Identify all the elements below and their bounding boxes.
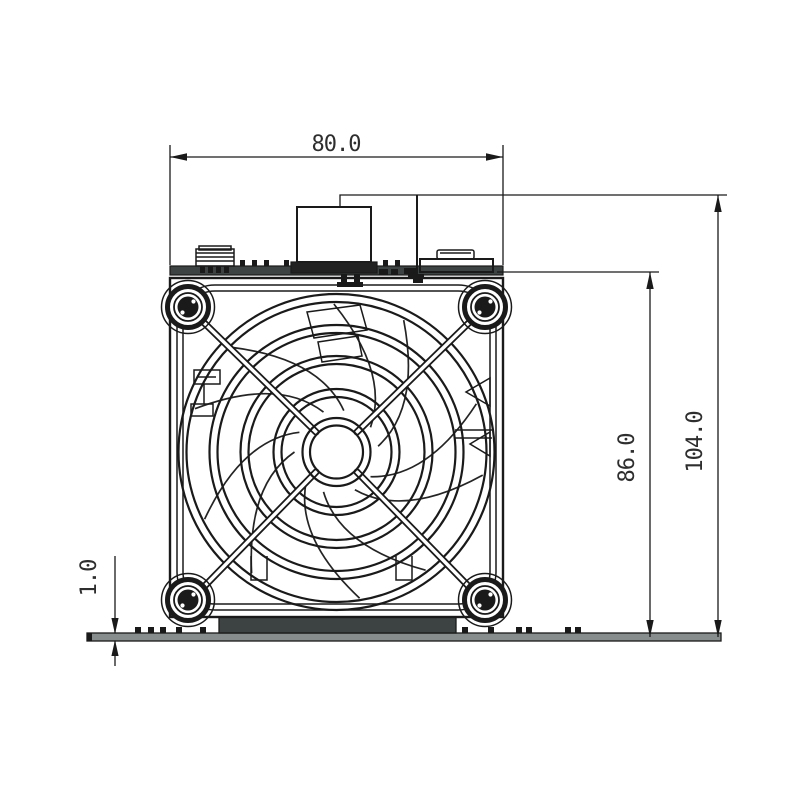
corner-screw-top-left — [162, 281, 215, 334]
dimension-width-label: 80.0 — [312, 132, 361, 157]
top-plate-assembly — [170, 195, 503, 287]
corner-screw-top-right — [459, 281, 512, 334]
fan-technical-drawing: 80.0 104.0 86.0 1.0 — [0, 0, 800, 800]
guard-hub-ring-inner — [310, 426, 363, 479]
gasket — [219, 617, 456, 633]
guard-hub-ring — [303, 418, 371, 486]
dimension-width: 80.0 — [170, 132, 503, 265]
dimension-body-height-label: 86.0 — [615, 434, 640, 483]
dimension-overall-height-label: 104.0 — [683, 411, 708, 472]
finger-guard-wires — [192, 311, 481, 599]
dimension-body-height: 86.0 — [497, 272, 659, 637]
dimension-plate-thickness-label: 1.0 — [77, 560, 102, 597]
dimension-plate-thickness: 1.0 — [77, 556, 119, 666]
corner-screw-bottom-right — [459, 574, 512, 627]
corner-screw-bottom-left — [162, 574, 215, 627]
